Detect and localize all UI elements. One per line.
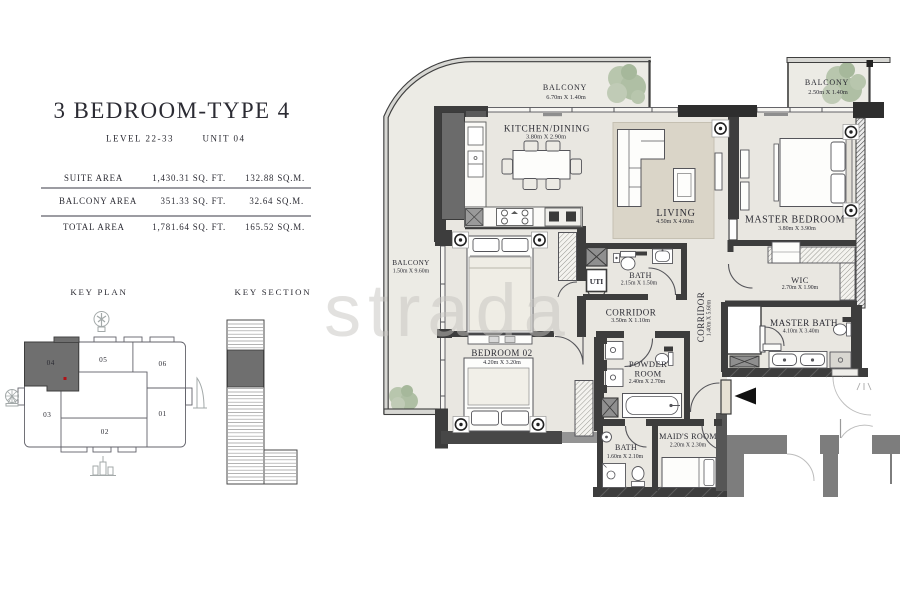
svg-text:BATH: BATH xyxy=(629,271,652,280)
svg-text:CORRIDOR: CORRIDOR xyxy=(696,292,706,343)
svg-text:WIC: WIC xyxy=(791,275,809,285)
svg-text:1,781.64 SQ. FT.: 1,781.64 SQ. FT. xyxy=(152,222,226,232)
svg-text:165.52 SQ.M.: 165.52 SQ.M. xyxy=(245,222,305,232)
svg-text:BALCONY AREA: BALCONY AREA xyxy=(59,196,137,206)
svg-text:2.20m X 2.30m: 2.20m X 2.30m xyxy=(670,443,707,449)
svg-text:05: 05 xyxy=(99,356,107,364)
svg-text:BALCONY: BALCONY xyxy=(805,78,849,87)
svg-text:KEY SECTION: KEY SECTION xyxy=(235,287,312,297)
svg-text:3.80m X 2.90m: 3.80m X 2.90m xyxy=(526,134,566,141)
svg-text:1,430.31 SQ. FT.: 1,430.31 SQ. FT. xyxy=(152,173,226,183)
svg-text:LIVING: LIVING xyxy=(656,208,695,219)
svg-text:POWDER: POWDER xyxy=(629,359,667,369)
svg-text:04: 04 xyxy=(47,359,55,367)
svg-text:06: 06 xyxy=(159,360,167,368)
svg-text:UTI: UTI xyxy=(590,277,604,286)
svg-text:UNIT 04: UNIT 04 xyxy=(202,134,245,144)
svg-text:132.88 SQ.M.: 132.88 SQ.M. xyxy=(245,173,305,183)
svg-text:2.70m X 1.90m: 2.70m X 1.90m xyxy=(782,285,819,291)
svg-text:ROOM: ROOM xyxy=(634,369,661,379)
svg-text:BALCONY: BALCONY xyxy=(543,83,587,92)
svg-text:4.10m X 3.40m: 4.10m X 3.40m xyxy=(783,329,820,335)
svg-text:3.80m X 3.90m: 3.80m X 3.90m xyxy=(778,226,816,232)
svg-text:2.40m X 2.70m: 2.40m X 2.70m xyxy=(629,379,666,385)
svg-text:02: 02 xyxy=(101,428,109,436)
svg-text:6.70m X 1.40m: 6.70m X 1.40m xyxy=(546,94,586,101)
svg-text:SUITE AREA: SUITE AREA xyxy=(64,173,123,183)
svg-text:4.50m X 4.00m: 4.50m X 4.00m xyxy=(656,219,694,225)
svg-text:2.50m X 1.40m: 2.50m X 1.40m xyxy=(808,89,848,96)
svg-text:BATH: BATH xyxy=(615,443,637,452)
svg-text:MASTER BEDROOM: MASTER BEDROOM xyxy=(745,215,845,226)
svg-text:351.33 SQ. FT.: 351.33 SQ. FT. xyxy=(160,196,226,206)
svg-text:KEY PLAN: KEY PLAN xyxy=(70,287,127,297)
svg-text:TOTAL AREA: TOTAL AREA xyxy=(63,222,125,232)
svg-text:03: 03 xyxy=(43,411,51,419)
svg-text:LEVEL 22-33: LEVEL 22-33 xyxy=(106,134,174,144)
svg-text:MAID'S ROOM: MAID'S ROOM xyxy=(659,432,717,441)
svg-text:32.64 SQ.M.: 32.64 SQ.M. xyxy=(249,196,304,206)
svg-text:01: 01 xyxy=(159,410,167,418)
svg-text:1.40m X 5.60m: 1.40m X 5.60m xyxy=(707,299,713,336)
svg-text:2.15m X 1.50m: 2.15m X 1.50m xyxy=(621,281,658,287)
svg-text:MASTER BATH: MASTER BATH xyxy=(770,318,838,328)
svg-text:BALCONY: BALCONY xyxy=(392,259,430,267)
svg-text:1.60m X 2.10m: 1.60m X 2.10m xyxy=(607,454,644,460)
svg-text:strada: strada xyxy=(324,269,572,352)
svg-text:4.20m X 3.20m: 4.20m X 3.20m xyxy=(483,360,521,366)
svg-text:3.50m X 1.10m: 3.50m X 1.10m xyxy=(611,317,650,324)
svg-text:3 BEDROOM-TYPE 4: 3 BEDROOM-TYPE 4 xyxy=(53,98,290,123)
